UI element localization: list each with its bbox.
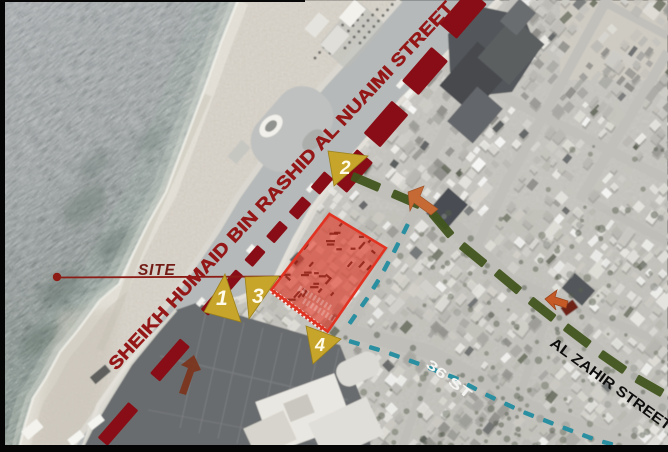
svg-text:2: 2 [339, 158, 351, 179]
svg-text:3: 3 [252, 285, 264, 308]
svg-text:4: 4 [314, 335, 325, 355]
svg-text:SITE: SITE [138, 262, 176, 279]
svg-text:1: 1 [216, 287, 228, 310]
